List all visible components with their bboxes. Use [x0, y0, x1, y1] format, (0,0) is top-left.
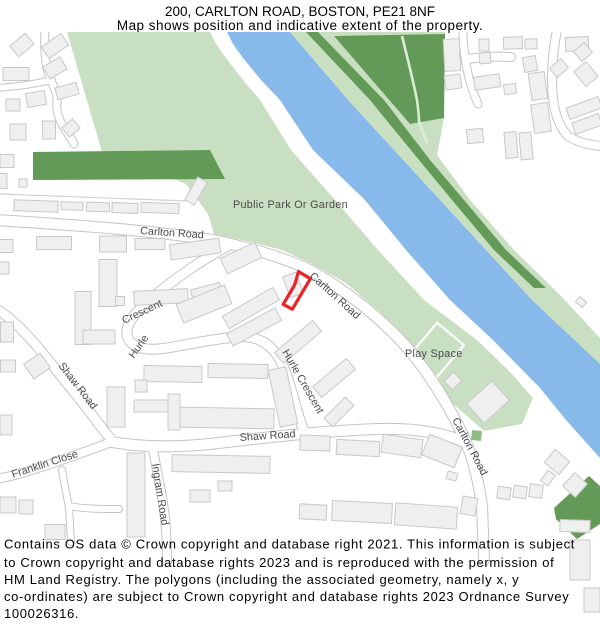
- svg-text:200, CARLTON ROAD, BOSTON, PE2: 200, CARLTON ROAD, BOSTON, PE21 8NF: [165, 4, 435, 19]
- svg-text:Contains OS data © Crown copyr: Contains OS data © Crown copyright and d…: [4, 537, 575, 552]
- svg-text:to Crown copyright and databas: to Crown copyright and database rights 2…: [4, 555, 554, 570]
- svg-text:Public Park Or Garden: Public Park Or Garden: [233, 199, 348, 211]
- svg-text:co-ordinates) are subject to C: co-ordinates) are subject to Crown copyr…: [4, 589, 569, 604]
- svg-text:100026316.: 100026316.: [4, 606, 79, 621]
- svg-text:HM Land Registry. The polygons: HM Land Registry. The polygons (includin…: [4, 572, 519, 587]
- svg-text:Map shows position and indicat: Map shows position and indicative extent…: [117, 18, 483, 33]
- svg-text:Play Space: Play Space: [405, 348, 463, 360]
